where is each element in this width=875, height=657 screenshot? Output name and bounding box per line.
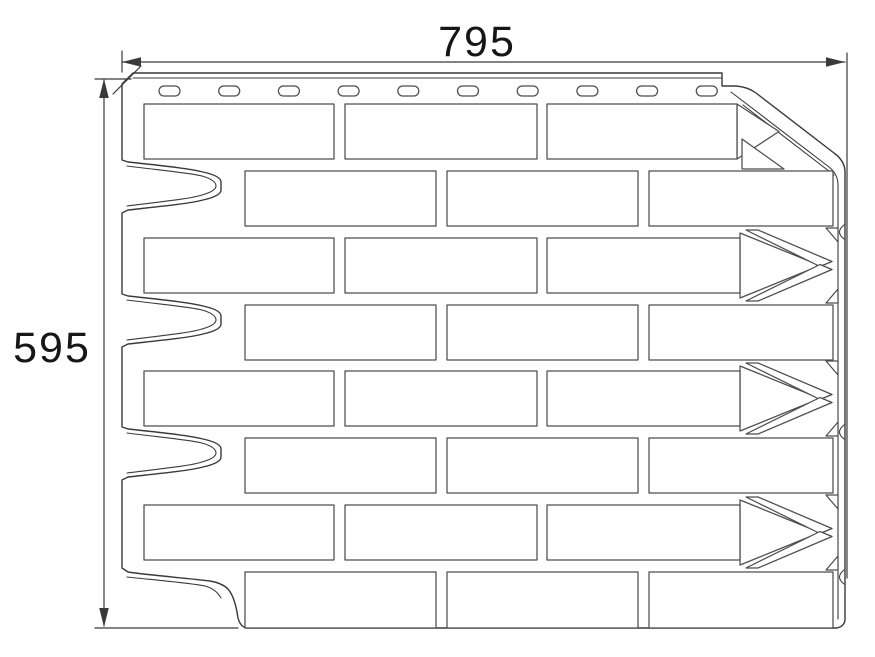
dim-arrow-left-icon [122, 57, 141, 67]
brick [345, 505, 537, 560]
brick [547, 104, 737, 159]
brick [649, 305, 833, 360]
edge-wedge [826, 495, 838, 509]
dim-arrow-down-icon [99, 608, 109, 627]
edge-wedge [826, 289, 838, 303]
brick [345, 104, 537, 159]
facade-panel-technical-drawing: 795 595 [0, 0, 875, 657]
brick [547, 505, 740, 560]
brick [649, 572, 833, 628]
edge-wedge [826, 422, 838, 436]
edge-wedge [826, 361, 838, 375]
nail-slot [458, 86, 479, 96]
brick [447, 171, 638, 226]
width-dimension-label: 795 [438, 18, 516, 66]
nail-slot [398, 86, 419, 96]
drawing-canvas: 795 595 [0, 0, 875, 657]
brick [144, 238, 334, 293]
brick [245, 171, 436, 226]
horizontal-dimension: 795 [122, 18, 847, 578]
nail-slot [338, 86, 359, 96]
brick [345, 238, 537, 293]
brick [447, 438, 638, 493]
brick-pattern [144, 104, 833, 628]
nail-slot [219, 86, 240, 96]
height-dimension-label: 595 [13, 324, 91, 372]
edge-notch [840, 570, 845, 584]
nail-slot [159, 86, 180, 96]
brick [447, 305, 638, 360]
dim-arrow-up-icon [99, 79, 109, 98]
nail-slot [577, 86, 598, 96]
brick [345, 371, 537, 426]
nail-hem-slots [159, 86, 717, 96]
corner-wedge [742, 139, 784, 169]
edge-notch [840, 425, 845, 439]
brick [649, 171, 833, 226]
brick [245, 438, 436, 493]
brick [245, 305, 436, 360]
dim-arrow-right-icon [826, 57, 845, 67]
brick [144, 104, 334, 159]
right-edge-notches [840, 225, 845, 584]
brick [547, 238, 740, 293]
edge-wedge [826, 556, 838, 570]
edge-notch [840, 225, 845, 239]
nail-slot [517, 86, 538, 96]
brick [144, 371, 334, 426]
brick [144, 505, 334, 560]
brick [649, 438, 833, 493]
brick [245, 572, 436, 628]
edge-wedge [826, 228, 838, 242]
brick [447, 572, 638, 628]
nail-slot [696, 86, 717, 96]
corner-slash-tick [113, 66, 141, 94]
nail-slot [637, 86, 658, 96]
nail-slot [278, 86, 299, 96]
brick [547, 371, 740, 426]
